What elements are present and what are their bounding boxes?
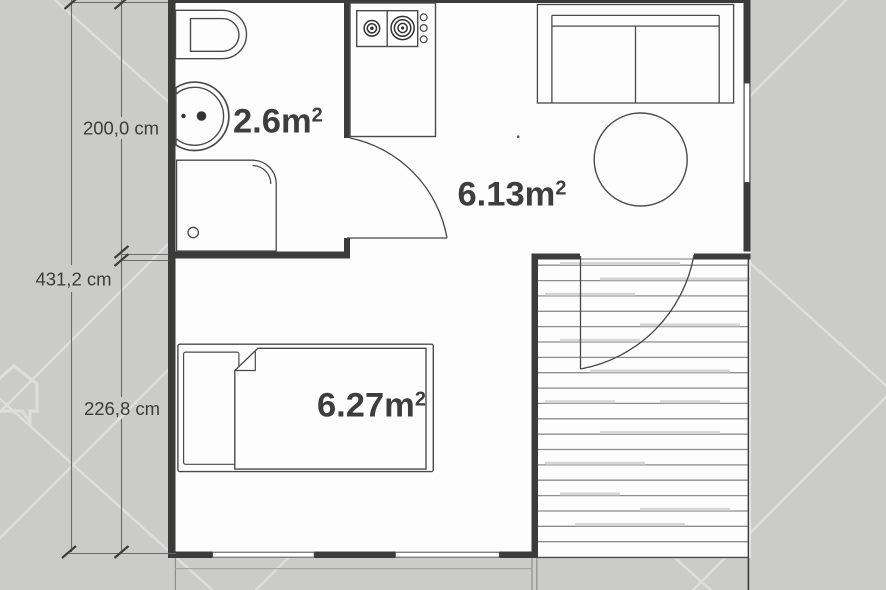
svg-text:226,8 cm: 226,8 cm xyxy=(84,398,160,419)
svg-text:200,0 cm: 200,0 cm xyxy=(83,118,159,139)
svg-text:6.27m2: 6.27m2 xyxy=(317,387,426,425)
svg-text:431,2 cm: 431,2 cm xyxy=(35,269,111,290)
svg-text:6.13m2: 6.13m2 xyxy=(458,176,567,214)
svg-text:2.6m2: 2.6m2 xyxy=(233,103,323,141)
